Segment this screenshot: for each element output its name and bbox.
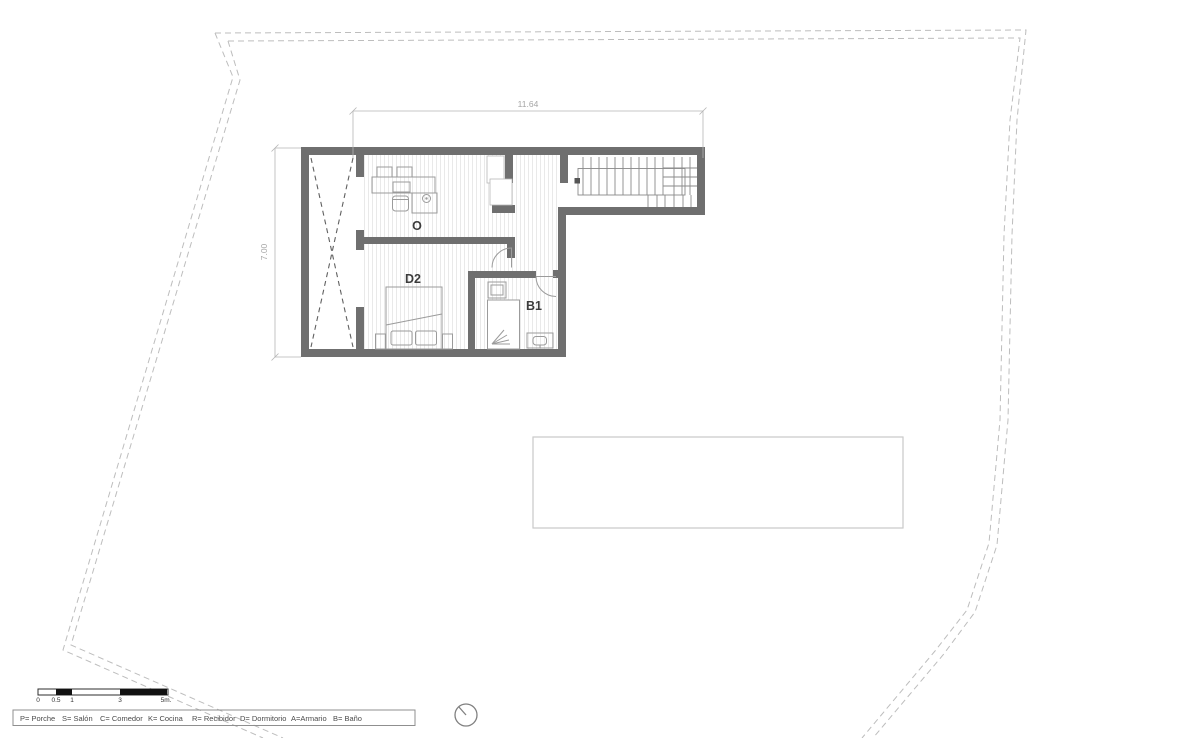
- closet-box: [490, 179, 512, 205]
- floor-plan-page: 11.64 7.00 O D2 B1 0 0.5 1 3 5m. P= Porc…: [0, 0, 1200, 738]
- wall-wing-bottom: [558, 207, 705, 215]
- legend-item-bano: B= Baño: [333, 714, 362, 723]
- scale-tick-3: 3: [118, 697, 122, 704]
- scale-tick-1: 1: [70, 697, 74, 704]
- floor-plan-drawing: 11.64 7.00 O D2 B1 0 0.5 1 3 5m. P= Porc…: [0, 0, 1200, 738]
- void-cross: [311, 158, 353, 347]
- wall-void-a: [356, 155, 364, 177]
- legend-item-salon: S= Salón: [62, 714, 93, 723]
- legend-item-cocina: K= Cocina: [148, 714, 184, 723]
- wall-left: [301, 147, 309, 357]
- wall-divider-o-d2: [356, 237, 507, 244]
- wall-hall-cap: [492, 205, 515, 213]
- scale-tick-05: 0.5: [51, 697, 60, 704]
- wall-b1-top: [468, 271, 536, 278]
- parcel-boundary: [63, 30, 1026, 738]
- dimension-left-value: 7.00: [259, 243, 269, 260]
- shower: [488, 300, 520, 349]
- room-label-bathroom: B1: [526, 299, 542, 313]
- legend-item-recibidor: R= Recibidor: [192, 714, 236, 723]
- stair-newel: [575, 178, 581, 184]
- stairs: [575, 157, 698, 207]
- legend-item-armario: A=Armario: [291, 714, 327, 723]
- stair-railing: [578, 169, 685, 196]
- wall-b1-left: [468, 278, 475, 349]
- wall-bottom: [301, 349, 566, 357]
- legend-item-comedor: C= Comedor: [100, 714, 143, 723]
- pool-outline: [533, 437, 903, 528]
- room-label-bedroom: D2: [405, 272, 421, 286]
- wall-top: [301, 147, 705, 155]
- legend-item-porche: P= Porche: [20, 714, 55, 723]
- dimension-top-value: 11.64: [518, 99, 539, 109]
- dimension-left: 7.00: [259, 145, 301, 361]
- scale-tick-0: 0: [36, 697, 40, 704]
- stair-treads: [583, 157, 697, 207]
- legend-item-dormitorio: D= Dormitorio: [240, 714, 286, 723]
- wall-office-right: [505, 147, 513, 183]
- scale-bar: 0 0.5 1 3 5m.: [36, 689, 171, 704]
- wall-stair-divider: [560, 155, 568, 183]
- wall-wing-right: [697, 147, 705, 215]
- scale-tick-5m: 5m.: [161, 697, 172, 704]
- wall-void-c: [356, 307, 364, 349]
- north-arrow-icon: [455, 704, 477, 726]
- room-label-office: O: [412, 219, 422, 233]
- wall-right-lower: [558, 207, 566, 357]
- legend: P= Porche S= Salón C= Comedor K= Cocina …: [13, 710, 415, 726]
